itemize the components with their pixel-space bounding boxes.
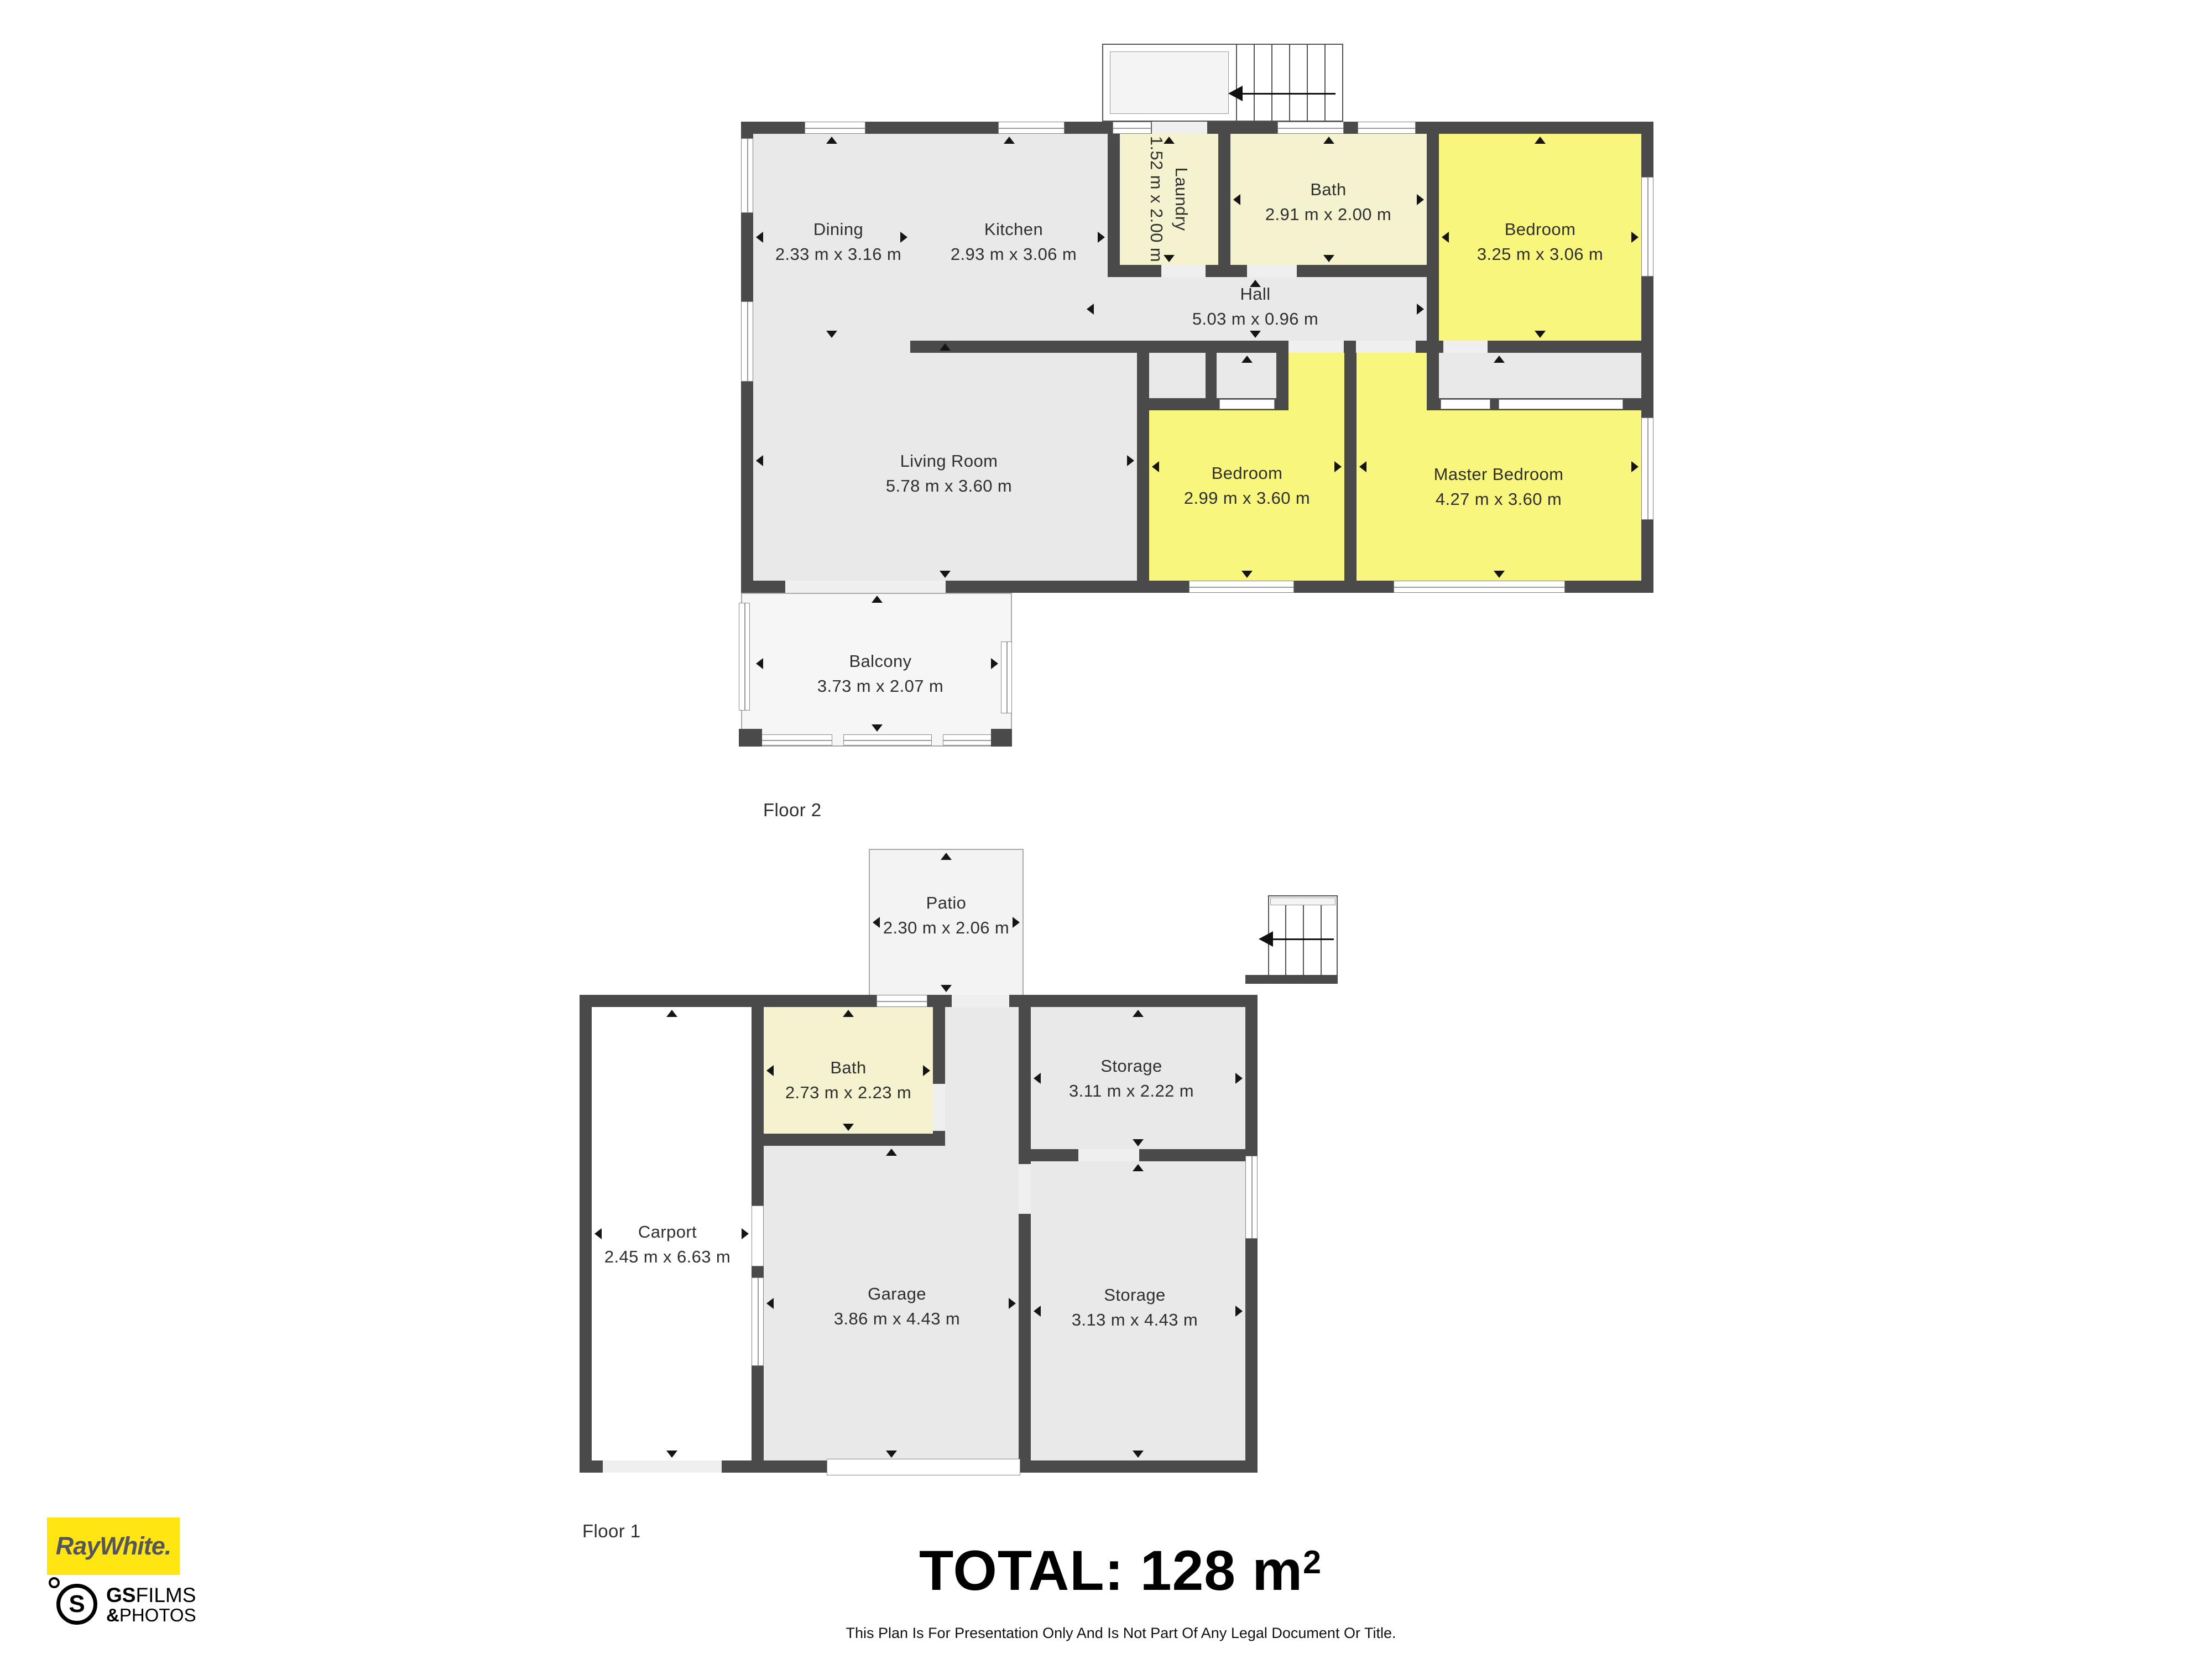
room-label-bath2: Bath2.91 m x 2.00 m: [1265, 177, 1391, 227]
room-name: Living Room: [886, 448, 1012, 473]
window-mullion-line: [1394, 587, 1564, 588]
plan-layer: Dining2.33 m x 3.16 mKitchen2.93 m x 3.0…: [0, 0, 2212, 1659]
window-mullion-line: [1113, 128, 1151, 129]
room-marker-down-icon: [1323, 255, 1334, 262]
door-opening: [1356, 341, 1416, 353]
room-marker-left-icon: [1087, 304, 1094, 315]
door-panel: [1441, 399, 1490, 409]
stairs1-landing: [1270, 898, 1335, 905]
room-marker-up-icon: [1241, 356, 1253, 363]
disclaimer-text: This Plan Is For Presentation Only And I…: [679, 1625, 1563, 1642]
total-area-superscript: 2: [1303, 1543, 1322, 1580]
room-marker-up-icon: [1535, 137, 1546, 144]
room-marker-down-icon: [1494, 571, 1505, 578]
room-marker-up-icon: [666, 1010, 677, 1017]
window-mullion-line: [1647, 178, 1648, 276]
room-label-storage1: Storage3.11 m x 2.22 m: [1069, 1053, 1194, 1103]
gsfilms-circle-icon: S: [56, 1584, 97, 1625]
room-dimensions: 3.25 m x 3.06 m: [1477, 242, 1603, 267]
balcony-rail-line: [744, 603, 745, 710]
room-name: Kitchen: [951, 217, 1077, 242]
room-label-bath1: Bath2.73 m x 2.23 m: [785, 1055, 911, 1105]
room-marker-down-icon: [886, 1451, 897, 1458]
room-marker-down-icon: [872, 724, 883, 732]
room-dimensions: 2.99 m x 3.60 m: [1184, 486, 1310, 510]
window: [1277, 122, 1344, 134]
room-marker-down-icon: [1241, 571, 1253, 578]
room-marker-up-icon: [1494, 356, 1505, 363]
gsfilms-degree-icon: [49, 1577, 60, 1588]
window: [998, 122, 1065, 134]
gs-text-bold1: GS: [106, 1584, 135, 1606]
room-marker-up-icon: [1323, 137, 1334, 144]
room-marker-right-icon: [1417, 304, 1424, 315]
balcony-rail: [760, 734, 832, 745]
balcony-rail: [943, 734, 995, 745]
room-name: Bath: [1265, 177, 1391, 202]
room-name: Hall: [1192, 281, 1318, 306]
window-mullion-line: [758, 1278, 759, 1365]
window: [1358, 122, 1416, 134]
room-name: Laundry: [1169, 136, 1194, 262]
stair-direction-arrow-icon: [1259, 931, 1273, 947]
room-marker-left-icon: [1034, 1073, 1041, 1084]
balcony-rail: [739, 603, 750, 711]
raywhite-logo-text: RayWhite.: [56, 1532, 171, 1561]
room-marker-down-icon: [1133, 1139, 1144, 1146]
room-dimensions: 3.86 m x 4.43 m: [834, 1306, 960, 1331]
room-marker-left-icon: [1152, 461, 1159, 472]
window: [1245, 1156, 1258, 1239]
stairs2-landing: [1110, 51, 1229, 114]
room-marker-up-icon: [941, 853, 952, 860]
door-panel: [752, 1206, 764, 1266]
window-mullion-line: [1647, 418, 1648, 519]
total-area: TOTAL: 128 m2: [733, 1538, 1507, 1603]
room-label-carport: Carport2.45 m x 6.63 m: [604, 1219, 731, 1269]
room-marker-left-icon: [594, 1228, 602, 1239]
stair-direction-line: [1272, 938, 1334, 940]
room-dimensions: 5.03 m x 0.96 m: [1192, 306, 1318, 331]
room-name: Bath: [785, 1055, 911, 1080]
window: [741, 138, 753, 213]
wall: [1108, 134, 1120, 277]
window: [1641, 418, 1653, 520]
room-label-patio: Patio2.30 m x 2.06 m: [883, 890, 1009, 940]
room-marker-up-icon: [940, 343, 951, 351]
room-marker-down-icon: [1535, 331, 1546, 338]
raywhite-logo: RayWhite.: [47, 1517, 180, 1575]
window-mullion-line: [805, 128, 865, 129]
room-marker-up-icon: [1133, 1164, 1144, 1171]
room-dimensions: 5.78 m x 3.60 m: [886, 473, 1012, 498]
room-dimensions: 2.30 m x 2.06 m: [883, 915, 1009, 940]
room-marker-down-icon: [826, 331, 837, 338]
wall: [764, 1134, 945, 1146]
room-dimensions: 4.27 m x 3.60 m: [1434, 487, 1564, 512]
room-label-laundry: Laundry1.52 m x 2.00 m: [1144, 136, 1194, 262]
room-label-living: Living Room5.78 m x 3.60 m: [886, 448, 1012, 498]
door-opening: [1443, 341, 1488, 353]
room-name: Storage: [1072, 1282, 1198, 1307]
room-dimensions: 2.45 m x 6.63 m: [604, 1244, 731, 1269]
room-name: Bedroom: [1477, 217, 1603, 242]
room-marker-right-icon: [923, 1065, 930, 1076]
total-area-text: TOTAL: 128 m: [919, 1539, 1303, 1602]
room-dimensions: 2.91 m x 2.00 m: [1265, 202, 1391, 227]
window-mullion-line: [1251, 1156, 1253, 1238]
balcony-rail-line: [844, 740, 931, 741]
balcony-post: [739, 729, 762, 747]
room-marker-left-icon: [756, 658, 763, 669]
room-marker-right-icon: [1334, 461, 1342, 472]
window-mullion-line: [747, 139, 748, 212]
room-marker-left-icon: [766, 1298, 774, 1309]
door-opening: [1161, 265, 1206, 277]
room-marker-down-icon: [843, 1124, 854, 1131]
room-label-hall: Hall5.03 m x 0.96 m: [1192, 281, 1318, 331]
balcony-rail-line: [761, 740, 832, 741]
room-marker-right-icon: [742, 1228, 749, 1239]
room-name: Master Bedroom: [1434, 462, 1564, 487]
room-marker-right-icon: [1631, 461, 1639, 472]
wall: [1019, 1007, 1031, 1460]
room-name: Balcony: [817, 649, 943, 674]
door-opening: [952, 995, 1009, 1007]
door-opening: [785, 581, 946, 593]
window: [1394, 581, 1565, 593]
room-marker-left-icon: [756, 455, 763, 466]
door-opening: [1288, 341, 1344, 353]
room-name: Storage: [1069, 1053, 1194, 1078]
balcony-rail-line: [943, 740, 995, 741]
window: [1113, 122, 1151, 134]
gs-text-reg1: FILMS: [135, 1584, 196, 1606]
balcony-rail-line: [1006, 642, 1008, 713]
gsfilms-logo: S GSFILMS &PHOTOS: [49, 1576, 281, 1631]
wall: [1276, 353, 1288, 398]
window-mullion-line: [1190, 587, 1293, 588]
room-label-balcony: Balcony3.73 m x 2.07 m: [817, 649, 943, 698]
room-label-storage2: Storage3.13 m x 4.43 m: [1072, 1282, 1198, 1332]
room-dimensions: 2.33 m x 3.16 m: [775, 242, 901, 267]
room-marker-right-icon: [1235, 1073, 1243, 1084]
window: [877, 995, 927, 1007]
wall: [1137, 353, 1149, 581]
room-marker-right-icon: [1417, 194, 1424, 205]
gsfilms-logo-text: GSFILMS &PHOTOS: [106, 1585, 196, 1625]
room-marker-left-icon: [766, 1065, 774, 1076]
room-label-master: Master Bedroom4.27 m x 3.60 m: [1434, 462, 1564, 512]
door-opening: [933, 1084, 945, 1131]
balcony-rail: [843, 734, 932, 745]
gs-text-bold2: &: [106, 1605, 119, 1625]
stair-tread-line: [1271, 45, 1272, 121]
window-mullion-line: [747, 302, 748, 381]
room-label-kitchen: Kitchen2.93 m x 3.06 m: [951, 217, 1077, 267]
stair-tread-line: [1307, 45, 1308, 121]
stair-direction-line: [1241, 93, 1335, 95]
room-label-dining: Dining2.33 m x 3.16 m: [775, 217, 901, 267]
room-marker-left-icon: [756, 232, 763, 243]
room-marker-down-icon: [1250, 331, 1261, 338]
room-marker-up-icon: [826, 137, 837, 144]
room-marker-down-icon: [940, 571, 951, 578]
stair-tread-line: [1324, 45, 1326, 121]
room-dimensions: 2.93 m x 3.06 m: [951, 242, 1077, 267]
room-marker-up-icon: [1004, 137, 1015, 144]
room-label-garage: Garage3.86 m x 4.43 m: [834, 1281, 960, 1331]
window: [752, 1277, 764, 1366]
room-label-bedroom-tr: Bedroom3.25 m x 3.06 m: [1477, 217, 1603, 267]
stair-direction-arrow-icon: [1228, 86, 1243, 101]
stair-tread-line: [1236, 45, 1237, 121]
balcony-post: [991, 729, 1012, 747]
door-opening: [1019, 1164, 1031, 1214]
room-marker-up-icon: [886, 1149, 897, 1156]
gs-text-reg2: PHOTOS: [119, 1605, 196, 1625]
room-dimensions: 3.73 m x 2.07 m: [817, 674, 943, 698]
room-name: Bedroom: [1184, 461, 1310, 486]
stair-tread-line: [1254, 45, 1255, 121]
door-opening: [1152, 122, 1207, 134]
room-marker-left-icon: [873, 917, 880, 928]
stair-tread-line: [1285, 905, 1286, 975]
robe-master: [1427, 353, 1641, 398]
room-marker-right-icon: [1013, 917, 1020, 928]
door-panel: [827, 1459, 1020, 1475]
stair-tread-line: [1321, 905, 1322, 975]
room-marker-up-icon: [843, 1010, 854, 1017]
wall: [1427, 134, 1439, 353]
door-panel: [1499, 399, 1623, 409]
stair-tread-line: [1303, 905, 1304, 975]
room-dimensions: 3.13 m x 4.43 m: [1072, 1307, 1198, 1332]
room-marker-right-icon: [991, 658, 998, 669]
door-opening: [1078, 1149, 1139, 1161]
window: [1641, 177, 1653, 276]
stair-tread-line: [1289, 45, 1290, 121]
floor1-label: Floor 1: [582, 1521, 641, 1542]
room-marker-down-icon: [1133, 1451, 1144, 1458]
room-marker-right-icon: [1631, 232, 1639, 243]
room-marker-right-icon: [1098, 232, 1105, 243]
wall: [1206, 353, 1217, 398]
room-dimensions: 1.52 m x 2.00 m: [1144, 136, 1169, 262]
room-marker-left-icon: [1442, 232, 1449, 243]
balcony-rail: [1001, 641, 1012, 713]
window-mullion-line: [877, 1001, 927, 1002]
room-marker-up-icon: [1133, 1010, 1144, 1017]
floor-plan-canvas: Dining2.33 m x 3.16 mKitchen2.93 m x 3.0…: [0, 0, 2212, 1659]
wall: [1427, 353, 1439, 398]
room-marker-right-icon: [1127, 455, 1134, 466]
window: [741, 301, 753, 382]
room-marker-right-icon: [1235, 1306, 1243, 1317]
window: [805, 122, 865, 134]
door-opening: [603, 1460, 722, 1473]
window-mullion-line: [1358, 128, 1415, 129]
wall: [910, 341, 1641, 353]
room-marker-down-icon: [941, 985, 952, 992]
wall: [1218, 134, 1230, 277]
room-name: Patio: [883, 890, 1009, 915]
wall: [1344, 353, 1357, 581]
stair1-wall-link: [1245, 975, 1338, 984]
room-marker-down-icon: [666, 1451, 677, 1458]
room-label-bedroom2: Bedroom2.99 m x 3.60 m: [1184, 461, 1310, 510]
door-panel: [1219, 399, 1275, 409]
room-marker-left-icon: [1233, 194, 1240, 205]
room-dimensions: 2.73 m x 2.23 m: [785, 1080, 911, 1105]
window: [1189, 581, 1294, 593]
room-marker-left-icon: [1359, 461, 1366, 472]
room-name: Dining: [775, 217, 901, 242]
room-name: Carport: [604, 1219, 731, 1244]
room-marker-right-icon: [1009, 1298, 1016, 1309]
door-opening: [1247, 265, 1297, 277]
room-dimensions: 3.11 m x 2.22 m: [1069, 1078, 1194, 1103]
room-marker-up-icon: [872, 596, 883, 603]
window-mullion-line: [1278, 128, 1343, 129]
room-marker-left-icon: [1034, 1306, 1041, 1317]
room-name: Garage: [834, 1281, 960, 1306]
gsfilms-s-glyph: S: [69, 1590, 85, 1618]
floor2-label: Floor 2: [763, 800, 822, 821]
window-mullion-line: [999, 128, 1064, 129]
